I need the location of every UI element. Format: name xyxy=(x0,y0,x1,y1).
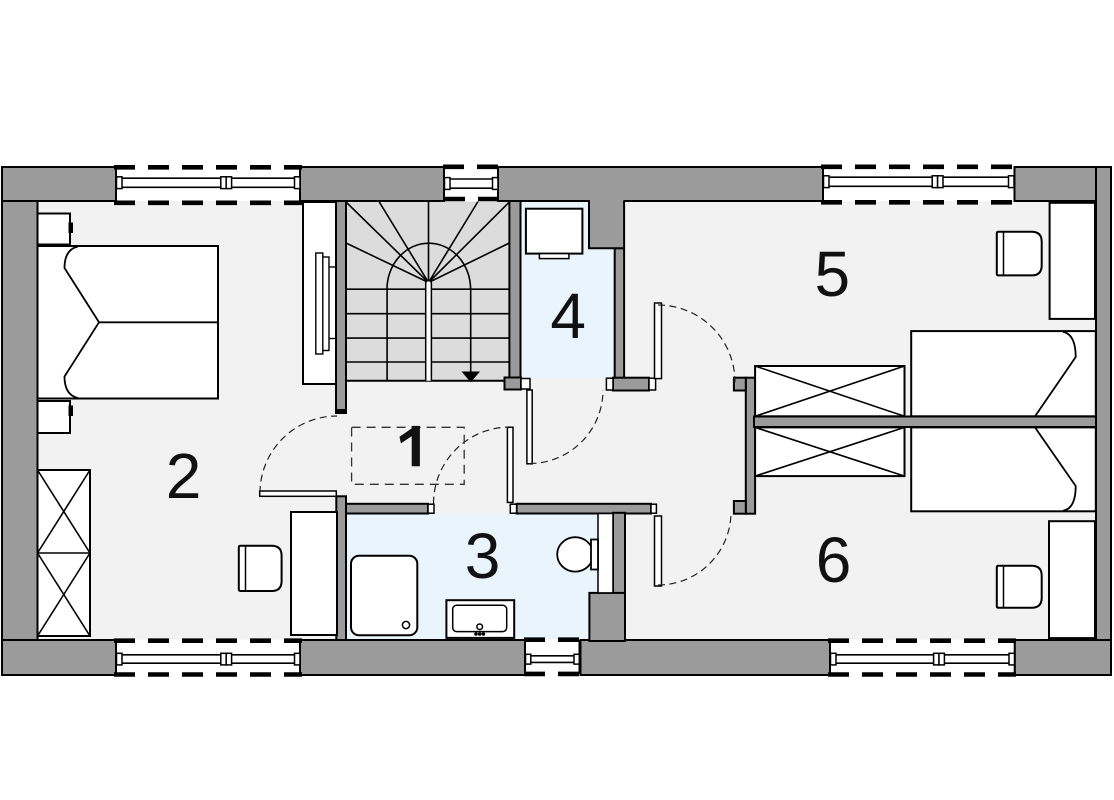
svg-text:6: 6 xyxy=(816,524,852,596)
svg-text:4: 4 xyxy=(550,280,586,352)
svg-text:5: 5 xyxy=(815,238,851,310)
svg-text:2: 2 xyxy=(166,440,202,512)
svg-text:3: 3 xyxy=(465,520,501,592)
